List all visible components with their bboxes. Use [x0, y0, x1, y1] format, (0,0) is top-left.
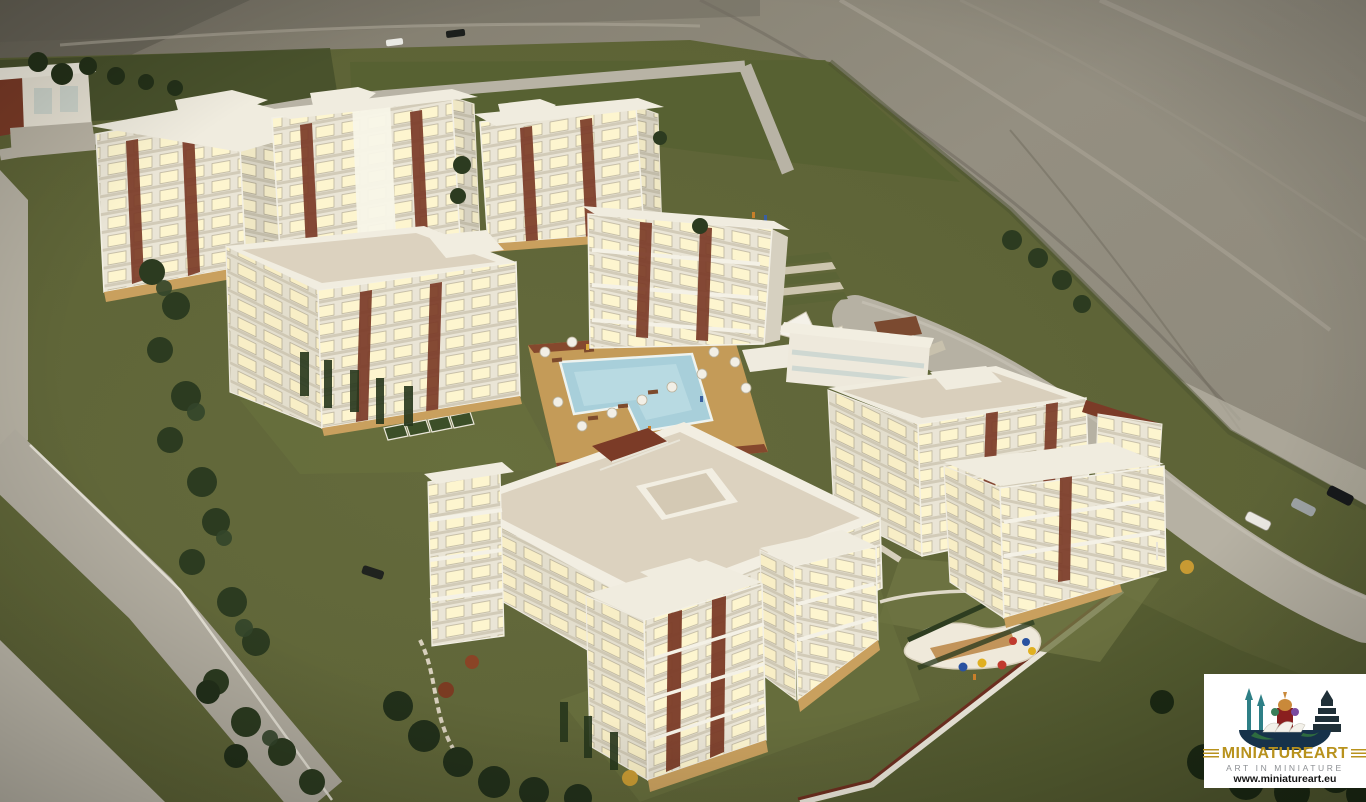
logo-tagline: ART IN MINIATURE [1226, 763, 1344, 773]
miniatureart-logo-graphic [1225, 688, 1345, 750]
logo-url: www.miniatureart.eu [1234, 773, 1337, 785]
model-photo-canvas [0, 0, 1366, 802]
logo-brand-text: MINIATUREART [1222, 746, 1349, 762]
deco-lines-left [1203, 749, 1219, 758]
logo-brand-row: MINIATUREART [1203, 746, 1366, 762]
photo-vignette [0, 0, 1366, 802]
miniatureart-watermark: MINIATUREART ART IN MINIATURE www.miniat… [1204, 674, 1366, 788]
deco-lines-right [1351, 749, 1366, 758]
photo-architectural-model: { "meta": { "title": "Photograph of an i… [0, 0, 1366, 802]
